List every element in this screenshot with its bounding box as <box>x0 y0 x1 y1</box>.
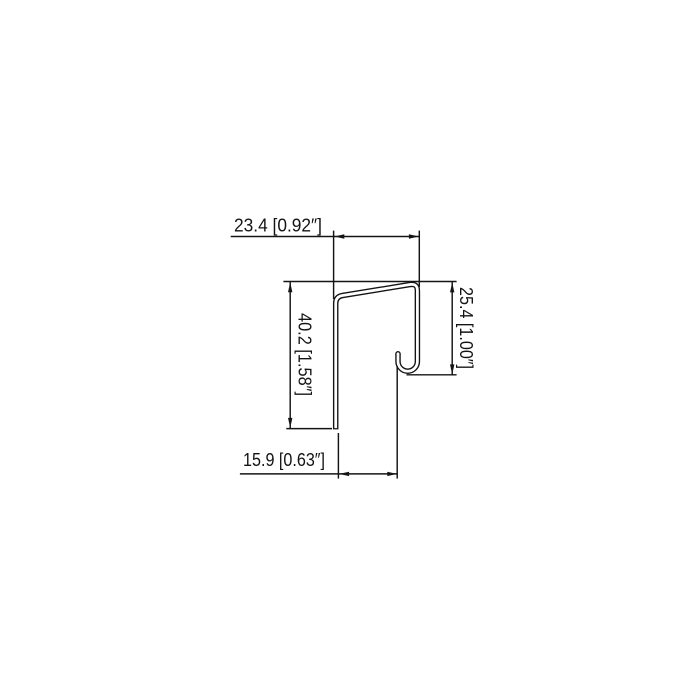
svg-text:15.9 [0.63″]: 15.9 [0.63″] <box>243 449 325 470</box>
svg-text:23.4 [0.92″]: 23.4 [0.92″] <box>234 215 322 236</box>
svg-text:25.4 [1.00″]: 25.4 [1.00″] <box>456 287 477 369</box>
svg-text:40.2 [1.58″]: 40.2 [1.58″] <box>295 313 316 396</box>
